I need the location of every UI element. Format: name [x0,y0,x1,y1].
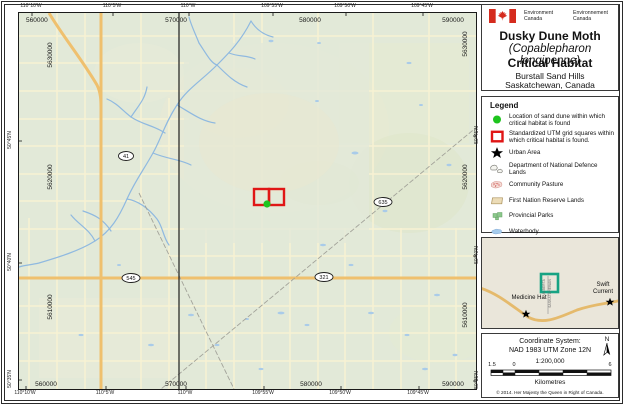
sand-dune-dot-icon [489,113,505,126]
highway-545-number: 545 [126,276,135,282]
northing-left-5630000: 5630000 [47,42,54,68]
lat-label-left-2: 50°40'N [7,253,13,271]
northing-right-5620000: 5620000 [462,164,469,190]
legend-item-community-pasture: Community Pasture [488,178,615,191]
easting-bottom-590000: 590000 [442,381,464,388]
lon-label-bottom-3: 110°W [178,390,193,396]
dnd-lands-icon [489,162,505,175]
map-title-habitat: Critical Habitat [482,56,618,70]
waterbody-icon [489,225,505,238]
inset-label-saskatchewan: SASKATCHEWAN [548,279,552,308]
lat-label-right-3: 50°35'N [474,371,480,389]
lon-label-top-3: 110°W [181,3,196,9]
city-label-swift-current: Swift Current [587,282,619,295]
inset-overview-map: Medicine Hat Swift Current ALBERTA SASKA… [481,237,619,329]
main-map-canvas: 41 635 545 321 560000 570000 580000 [18,12,477,390]
utm-grid-square-icon [489,130,505,143]
northing-left-5610000: 5610000 [47,294,54,320]
sand-patch [199,93,339,193]
map-document-page: 41 635 545 321 560000 570000 580000 [0,0,624,405]
legend-item-first-nation: First Nation Reserve Lands [488,194,615,207]
lon-label-top-2: 110°5'W [103,3,121,9]
provincial-parks-icon [489,209,505,222]
northing-right-5630000: 5630000 [462,31,469,57]
copyright-notice: © 2014. Her Majesty the Queen in Right o… [482,390,618,395]
coord-system-value: NAD 1983 UTM Zone 12N [482,347,618,354]
coordinate-panel: Coordinate System: NAD 1983 UTM Zone 12N… [481,333,619,398]
legend-label: Urban Area [509,149,540,156]
legend-items: Location of sand dune within which criti… [488,113,615,253]
inset-label-alberta: ALBERTA [542,279,546,295]
lon-label-bottom-5: 109°50'W [329,390,351,396]
lon-label-top-5: 109°50'W [334,3,356,9]
lon-label-top-4: 109°55'W [261,3,283,9]
city-label-medicine-hat: Medicine Hat [510,295,548,302]
legend-item-urban-area: Urban Area [488,146,615,159]
sand-dune-location-dot [263,200,270,207]
easting-bottom-560000: 560000 [35,381,57,388]
lon-label-bottom-6: 109°45'W [407,390,429,396]
legend-item-utm-squares: Standardized UTM grid squares within whi… [488,130,615,144]
legend-title: Legend [490,101,518,110]
lat-label-left-3: 50°35'N [7,370,13,388]
highway-635-number: 635 [378,200,387,206]
dept-wordmark-fr: Environnement Canada [573,10,608,22]
community-pasture-icon [489,178,505,191]
highway-545-shield: 545 [122,274,140,283]
legend-item-provincial-parks: Provincial Parks [488,209,615,222]
first-nation-lands-icon [489,194,505,207]
coord-system-label: Coordinate System: [482,338,618,345]
urban-area-star-icon [489,146,505,159]
legend-label: Provincial Parks [509,212,553,219]
highway-635-shield: 635 [374,198,392,207]
highway-321-shield: 321 [315,273,333,282]
lon-label-bottom-4: 109°55'W [252,390,274,396]
scale-bar [490,369,612,377]
legend-panel: Legend Location of sand dune within whic… [481,96,619,233]
lat-label-right-2: 50°40'N [474,246,480,264]
legend-item-waterbody: Waterbody [488,225,615,238]
scalebar-label-zero: 0 [512,362,515,368]
legend-label: Department of National Defence Lands [509,162,615,176]
lat-label-left-1: 50°45'N [7,131,13,149]
scalebar-label-left: 1.5 [488,362,496,368]
lon-label-top-1: 110°10'W [20,3,41,9]
legend-label: Community Pasture [509,181,563,188]
map-subtitle-region: Saskatchewan, Canada [482,80,618,90]
easting-top-590000: 590000 [442,17,464,24]
legend-item-sand-dune: Location of sand dune within which criti… [488,113,615,127]
north-label: N [601,336,613,343]
legend-label: Location of sand dune within which criti… [509,113,615,127]
map-scale-ratio: 1:200,000 [482,358,618,365]
highway-41-shield: 41 [119,152,134,161]
scalebar-label-right: 6 [608,362,611,368]
scalebar-unit-label: Kilometres [482,379,618,386]
easting-top-560000: 560000 [26,17,48,24]
lon-label-bottom-1: 110°10'W [14,390,35,396]
highway-41-number: 41 [123,154,129,160]
dept-wordmark-en: Environment Canada [524,10,553,22]
easting-bottom-570000: 570000 [165,381,187,388]
lon-label-bottom-2: 110°5'W [96,390,114,396]
legend-label: Waterbody [509,228,539,235]
north-arrow: N [601,336,613,361]
north-arrow-icon [602,343,612,356]
legend-label: First Nation Reserve Lands [509,197,584,204]
lon-label-top-6: 109°45'W [411,3,433,9]
canada-flag-icon [489,9,516,23]
northing-left-5620000: 5620000 [47,164,54,190]
highway-321-number: 321 [319,275,328,281]
swift-current-star [606,298,615,306]
northing-right-5610000: 5610000 [462,302,469,328]
legend-label: Standardized UTM grid squares within whi… [509,130,615,144]
easting-bottom-580000: 580000 [300,381,322,388]
map-title: Dusky Dune Moth [482,29,618,43]
easting-top-580000: 580000 [299,17,321,24]
easting-top-570000: 570000 [165,17,187,24]
title-panel: Environment Canada Environnement Canada … [481,4,619,91]
legend-item-dnd-lands: Department of National Defence Lands [488,162,615,176]
lat-label-right-1: 50°45'N [474,126,480,144]
